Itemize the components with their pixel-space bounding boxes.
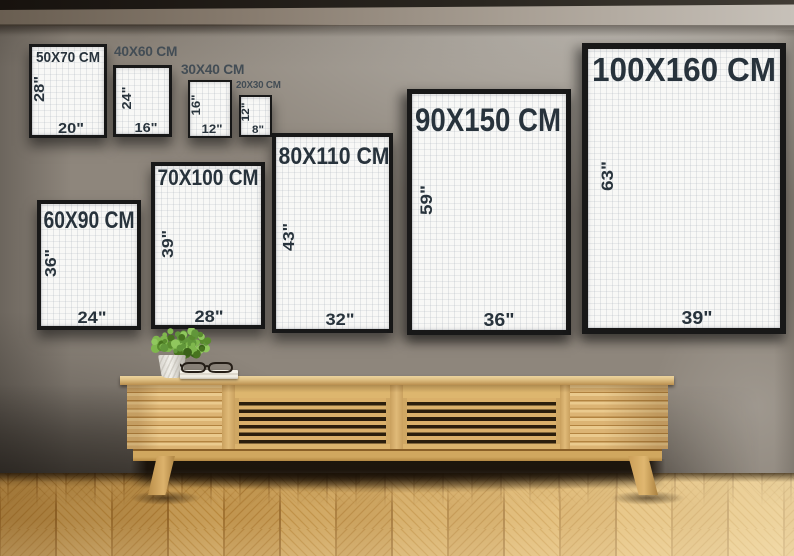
svg-text:16": 16": [189, 95, 203, 116]
svg-text:63": 63": [598, 161, 617, 191]
svg-text:12": 12": [202, 122, 223, 136]
svg-text:60X90 CM: 60X90 CM: [44, 207, 135, 234]
svg-text:39": 39": [160, 230, 177, 258]
svg-text:28": 28": [195, 307, 224, 326]
svg-text:32": 32": [326, 310, 355, 329]
svg-text:24": 24": [119, 87, 134, 110]
svg-text:16": 16": [135, 120, 158, 135]
svg-text:100X160 CM: 100X160 CM: [592, 51, 776, 88]
svg-text:39": 39": [682, 308, 713, 328]
svg-text:8": 8": [252, 124, 264, 136]
svg-text:20": 20": [58, 120, 84, 137]
svg-text:28": 28": [31, 76, 48, 102]
svg-text:36": 36": [484, 310, 515, 330]
svg-text:70X100 CM: 70X100 CM: [158, 165, 259, 190]
svg-text:50X70 CM: 50X70 CM: [36, 49, 100, 66]
svg-text:24": 24": [78, 308, 107, 327]
svg-text:80X110 CM: 80X110 CM: [279, 143, 390, 170]
svg-text:90X150 CM: 90X150 CM: [415, 102, 561, 138]
svg-text:43": 43": [281, 223, 298, 251]
svg-text:59": 59": [417, 185, 436, 215]
svg-text:36": 36": [43, 249, 60, 277]
svg-text:12": 12": [240, 103, 252, 122]
